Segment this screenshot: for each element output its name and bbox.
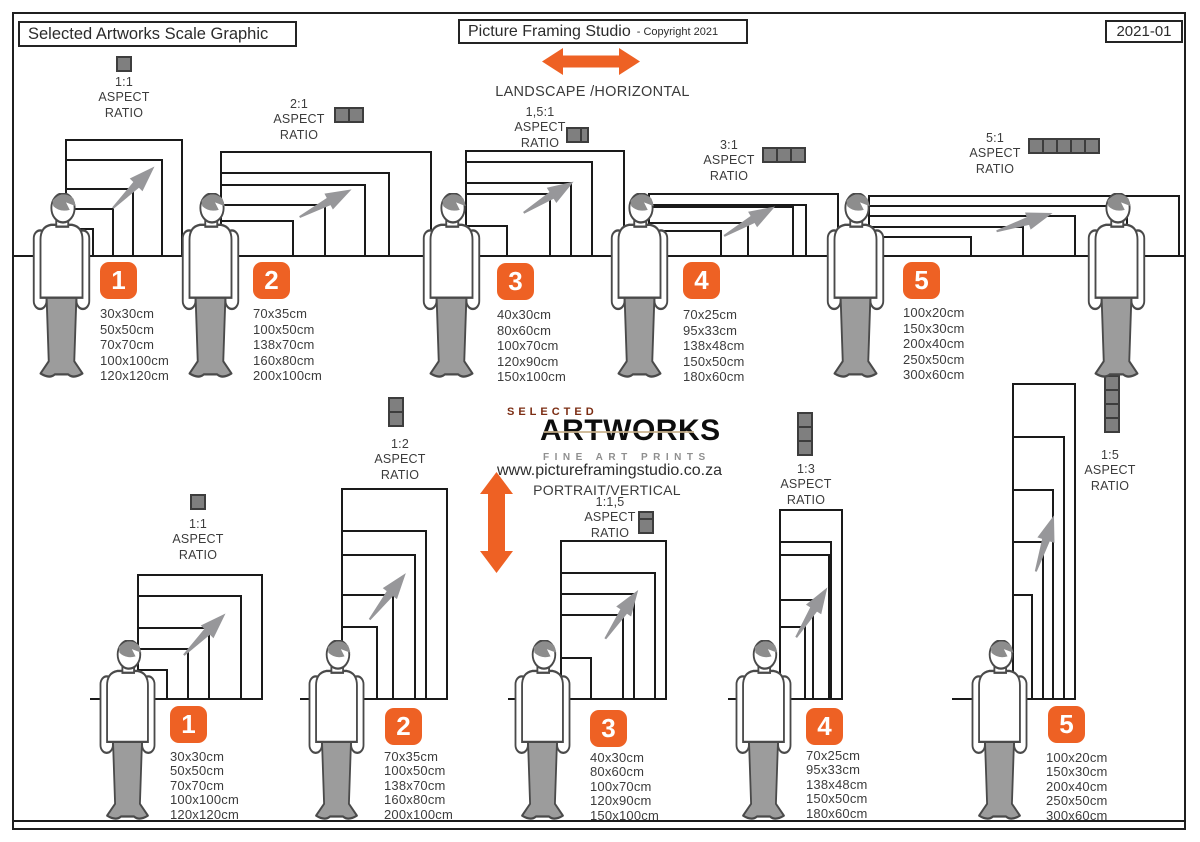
size-list: 30x30cm 50x50cm 70x70cm 100x100cm 120x12… — [170, 750, 239, 822]
size-list: 70x25cm 95x33cm 138x48cm 150x50cm 180x60… — [683, 307, 745, 385]
aspect-ratio-label: 1:2 ASPECT RATIO — [365, 437, 435, 483]
group-number-badge: 1 — [100, 262, 137, 299]
aspect-icon-1to1_5-portrait — [638, 511, 654, 534]
aspect-ratio-label: 1:1,5 ASPECT RATIO — [575, 495, 645, 541]
group-number-badge: 4 — [683, 262, 720, 299]
scale-person — [727, 640, 800, 822]
size-list: 70x35cm 100x50cm 138x70cm 160x80cm 200x1… — [384, 750, 453, 822]
aspect-ratio-label: 1:3 ASPECT RATIO — [771, 462, 841, 508]
aspect-ratio-label: 1:1 ASPECT RATIO — [89, 75, 159, 121]
size-list: 40x30cm 80x60cm 100x70cm 120x90cm 150x10… — [497, 307, 566, 385]
group-number-badge: 2 — [253, 262, 290, 299]
group-number-badge: 5 — [1048, 706, 1085, 743]
version-code: 2021-01 — [1116, 23, 1171, 40]
aspect-ratio-label: 1:5 ASPECT RATIO — [1075, 448, 1145, 494]
center-title: Picture Framing Studio — [468, 23, 631, 41]
group-number-badge: 2 — [385, 708, 422, 745]
aspect-icon-5to1-landscape — [1028, 138, 1100, 154]
size-list: 30x30cm 50x50cm 70x70cm 100x100cm 120x12… — [100, 306, 169, 384]
header-left-title-box: Selected Artworks Scale Graphic — [18, 21, 297, 47]
scale-graphic-poster: Selected Artworks Scale Graphic Picture … — [0, 0, 1200, 842]
header-center-title-box: Picture Framing Studio - Copyright 2021 — [458, 19, 748, 44]
scale-person — [300, 640, 373, 822]
group-number-badge: 3 — [497, 263, 534, 300]
scale-person — [173, 193, 248, 380]
aspect-ratio-label: 3:1 ASPECT RATIO — [694, 138, 764, 184]
scale-person — [24, 193, 99, 380]
size-list: 70x25cm 95x33cm 138x48cm 150x50cm 180x60… — [806, 749, 868, 821]
center-copyright: - Copyright 2021 — [637, 26, 718, 38]
scale-person — [414, 193, 489, 380]
aspect-icon-1to2-portrait — [388, 397, 404, 427]
size-list: 100x20cm 150x30cm 200x40cm 250x50cm 300x… — [903, 305, 965, 383]
scale-person — [1079, 193, 1154, 380]
aspect-icon-2to1-landscape — [334, 107, 364, 123]
left-title: Selected Artworks Scale Graphic — [28, 25, 268, 44]
group-number-badge: 5 — [903, 262, 940, 299]
group-number-badge: 4 — [806, 708, 843, 745]
scale-person — [602, 193, 677, 380]
aspect-icon-1to1-portrait — [190, 494, 206, 510]
landscape-direction-label: LANDSCAPE /HORIZONTAL — [490, 84, 695, 100]
aspect-ratio-label: 1,5:1 ASPECT RATIO — [505, 105, 575, 151]
scale-person — [963, 640, 1036, 822]
website-url: www.pictureframingstudio.co.za — [497, 462, 717, 480]
scale-person — [506, 640, 579, 822]
landscape-double-arrow-icon — [542, 46, 640, 77]
scale-person — [818, 193, 893, 380]
group-number-badge: 1 — [170, 706, 207, 743]
aspect-ratio-label: 5:1 ASPECT RATIO — [960, 131, 1030, 177]
header-version-box: 2021-01 — [1105, 20, 1183, 43]
aspect-ratio-label: 1:1 ASPECT RATIO — [163, 517, 233, 563]
aspect-icon-1to3-portrait — [797, 412, 813, 456]
scale-person — [91, 640, 164, 822]
aspect-icon-1_5to1-landscape — [566, 127, 589, 143]
aspect-icon-1to1-landscape — [116, 56, 132, 72]
group-number-badge: 3 — [590, 710, 627, 747]
logo-strike-line — [544, 431, 694, 433]
aspect-ratio-label: 2:1 ASPECT RATIO — [264, 97, 334, 143]
size-list: 40x30cm 80x60cm 100x70cm 120x90cm 150x10… — [590, 751, 659, 823]
size-list: 70x35cm 100x50cm 138x70cm 160x80cm 200x1… — [253, 306, 322, 384]
aspect-icon-3to1-landscape — [762, 147, 806, 163]
size-list: 100x20cm 150x30cm 200x40cm 250x50cm 300x… — [1046, 751, 1108, 823]
